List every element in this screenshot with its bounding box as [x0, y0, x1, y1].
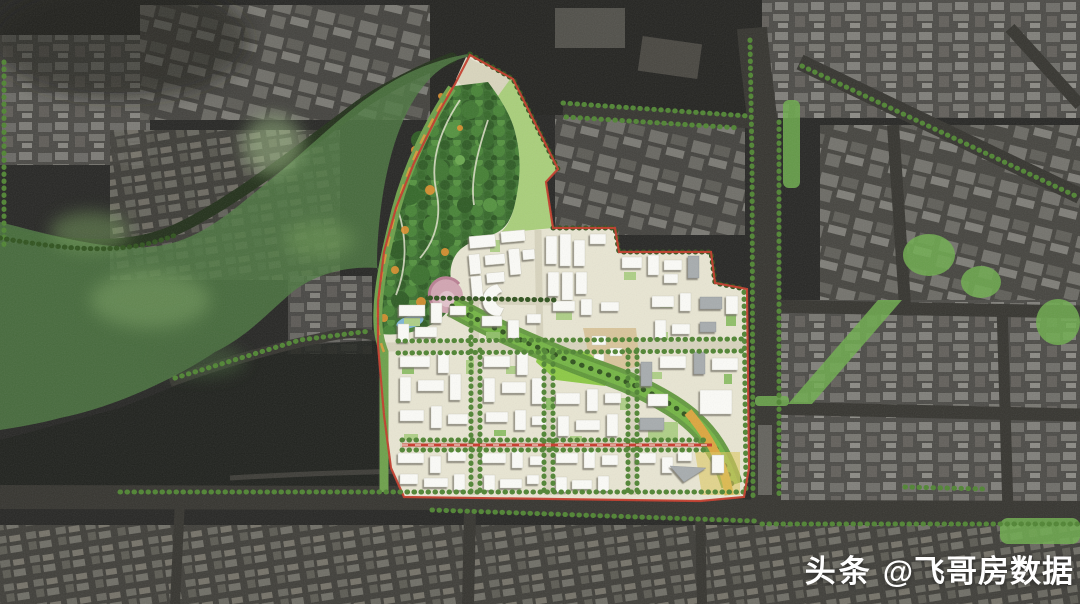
satellite-grain-texture — [0, 0, 1080, 604]
watermark: 头条@飞哥房数据 — [805, 546, 1074, 591]
site-plan-aerial-map — [0, 0, 1080, 604]
account-handle: @飞哥房数据 — [883, 554, 1074, 589]
aerial-masterplan-screenshot: 头条@飞哥房数据 — [0, 0, 1080, 604]
toutiao-logo-text: 头条 — [805, 554, 873, 589]
